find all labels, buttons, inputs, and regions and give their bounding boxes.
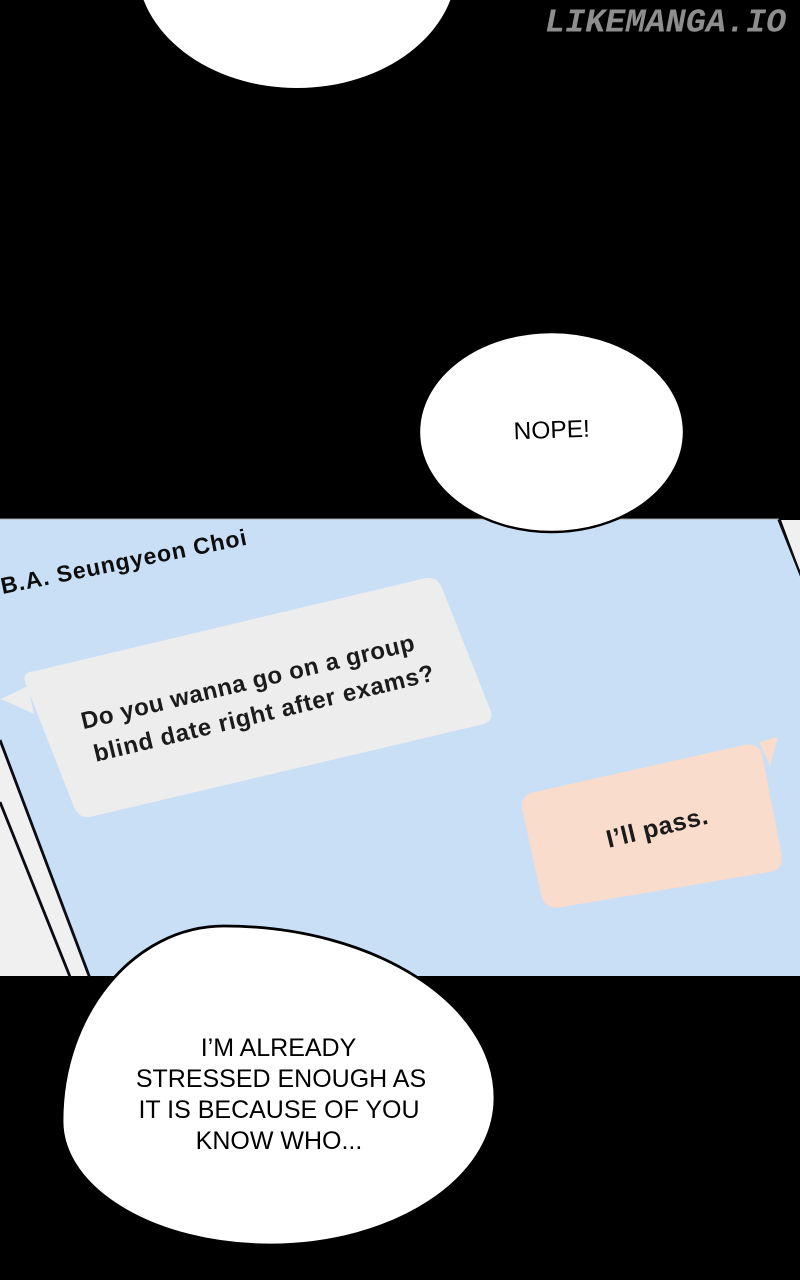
svg-text:KNOW WHO...: KNOW WHO... [196,1127,363,1155]
svg-text:LIKEMANGA.IO: LIKEMANGA.IO [545,5,786,43]
svg-text:NOPE!: NOPE! [513,416,590,446]
svg-text:I’M ALREADY: I’M ALREADY [201,1034,357,1062]
svg-text:IT IS BECAUSE OF YOU: IT IS BECAUSE OF YOU [138,1096,419,1124]
svg-text:STRESSED ENOUGH AS: STRESSED ENOUGH AS [136,1065,426,1093]
